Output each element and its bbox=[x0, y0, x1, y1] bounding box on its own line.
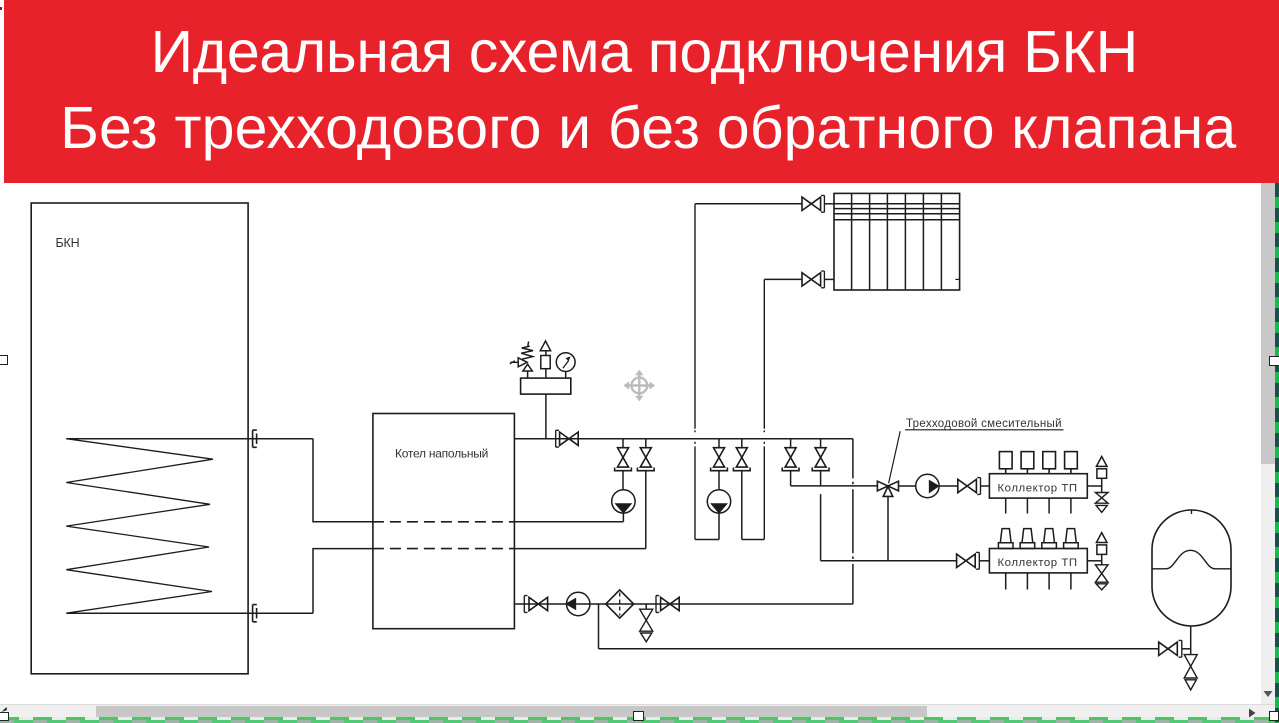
svg-text:Коллектор ТП: Коллектор ТП bbox=[998, 557, 1078, 569]
svg-text:БКН: БКН bbox=[56, 236, 80, 250]
svg-text:Коллектор ТП: Коллектор ТП bbox=[998, 482, 1078, 494]
svg-text:Котел напольный: Котел напольный bbox=[395, 446, 488, 460]
svg-text:Трехходовой смесительный: Трехходовой смесительный bbox=[906, 418, 1062, 430]
